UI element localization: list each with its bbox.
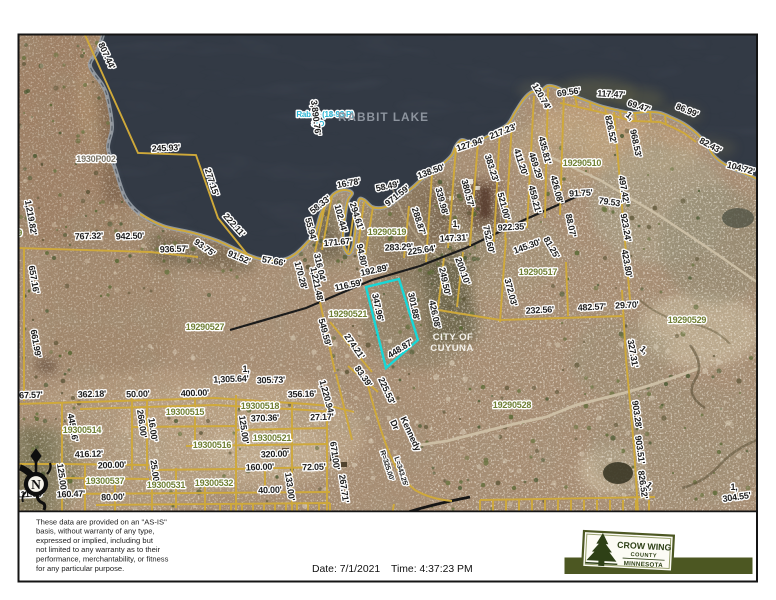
svg-text:200.00': 200.00'	[98, 460, 127, 471]
svg-text:CITY OF: CITY OF	[433, 332, 473, 343]
svg-text:expressed or implied, includin: expressed or implied, including but	[36, 536, 154, 545]
svg-text:19300518: 19300518	[241, 401, 280, 411]
svg-text:482.57': 482.57'	[577, 301, 606, 312]
svg-text:1930P002: 1930P002	[76, 154, 116, 164]
svg-text:basis, without warranty of any: basis, without warranty of any type,	[36, 527, 155, 536]
svg-text:91.75': 91.75'	[569, 187, 593, 198]
svg-text:1,: 1,	[730, 482, 737, 492]
svg-text:29.70': 29.70'	[615, 299, 639, 310]
svg-text:160.47': 160.47'	[57, 489, 86, 500]
svg-text:1,: 1,	[452, 219, 459, 229]
svg-text:117.47': 117.47'	[597, 88, 625, 99]
svg-text:CUYUNA: CUYUNA	[430, 343, 473, 354]
svg-text:416.12': 416.12'	[75, 449, 104, 460]
svg-text:370.36': 370.36'	[251, 413, 280, 424]
svg-text:19290510: 19290510	[563, 158, 602, 168]
svg-text:305.73': 305.73'	[257, 375, 286, 386]
svg-text:19300531: 19300531	[147, 480, 186, 490]
svg-text:356.16': 356.16'	[288, 389, 317, 400]
svg-text:performance, merchantability,: performance, merchantability, or fitness	[36, 555, 169, 564]
svg-text:922.35': 922.35'	[497, 221, 526, 232]
svg-text:19300516: 19300516	[193, 440, 232, 450]
svg-text:67.57': 67.57'	[19, 390, 43, 401]
svg-text:942.50': 942.50'	[116, 231, 145, 242]
svg-text:19300515: 19300515	[166, 407, 205, 417]
svg-text:362.18': 362.18'	[78, 389, 107, 400]
svg-text:245.93': 245.93'	[151, 142, 180, 153]
svg-text:19300521: 19300521	[253, 433, 292, 443]
svg-text:RABBIT LAKE: RABBIT LAKE	[338, 110, 429, 124]
svg-text:27.17': 27.17'	[310, 412, 334, 423]
svg-text:19290527: 19290527	[186, 322, 225, 332]
svg-text:72.05': 72.05'	[302, 462, 326, 473]
svg-text:19300532: 19300532	[195, 478, 234, 488]
svg-text:19290517: 19290517	[519, 267, 558, 277]
svg-text:19290521: 19290521	[329, 309, 368, 319]
svg-text:Date: 7/1/2021: Date: 7/1/2021	[312, 564, 380, 575]
svg-text:936.57': 936.57'	[160, 244, 189, 255]
svg-text:320.00': 320.00'	[261, 449, 290, 460]
svg-text:These data are provided on an: These data are provided on an "AS-IS"	[36, 517, 167, 526]
svg-text:400.00': 400.00'	[181, 388, 210, 399]
svg-text:for any particular purpose.: for any particular purpose.	[36, 564, 124, 573]
svg-text:19300537: 19300537	[86, 476, 125, 486]
svg-text:19290528: 19290528	[493, 400, 532, 410]
svg-text:N: N	[31, 477, 41, 492]
svg-text:40.00': 40.00'	[258, 485, 282, 496]
svg-text:19300514: 19300514	[63, 425, 102, 435]
svg-text:767.32': 767.32'	[75, 231, 104, 242]
svg-text:50.00': 50.00'	[126, 389, 150, 400]
svg-text:147.31': 147.31'	[439, 232, 468, 243]
svg-text:1,305.64': 1,305.64'	[213, 373, 249, 384]
svg-text:19290529: 19290529	[668, 315, 707, 325]
svg-text:1,: 1,	[242, 364, 249, 374]
svg-text:not limited to any warranty as: not limited to any warranty as to their	[36, 545, 161, 554]
svg-text:80.00': 80.00'	[101, 492, 125, 503]
svg-text:Time: 4:37:23 PM: Time: 4:37:23 PM	[391, 564, 473, 575]
svg-text:232.56': 232.56'	[525, 304, 554, 315]
svg-text:160.00': 160.00'	[246, 462, 275, 473]
svg-text:19290519: 19290519	[368, 227, 407, 237]
